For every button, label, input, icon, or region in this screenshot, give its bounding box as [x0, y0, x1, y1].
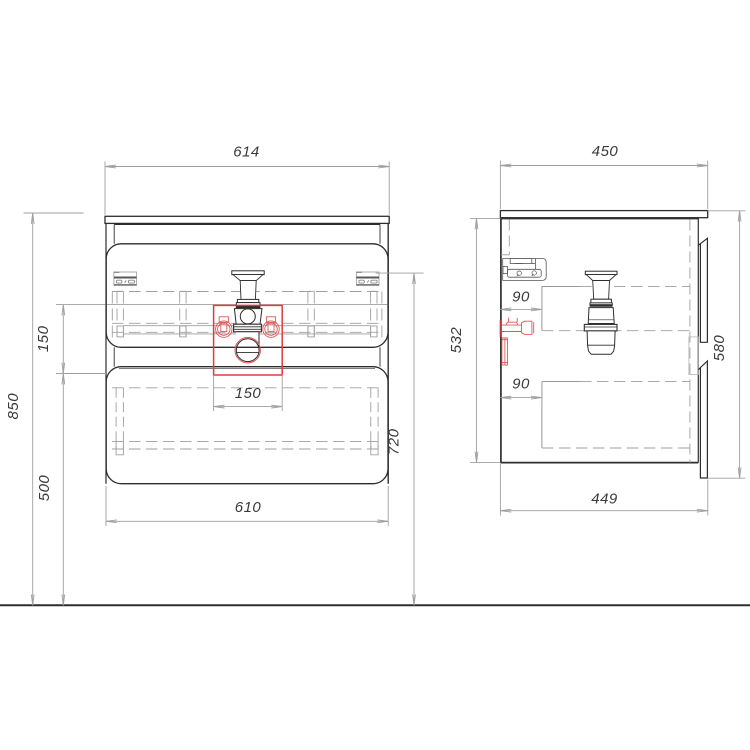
- svg-text:500: 500: [36, 475, 53, 502]
- svg-text:90: 90: [512, 375, 530, 392]
- svg-text:614: 614: [233, 144, 260, 161]
- svg-text:532: 532: [448, 327, 465, 354]
- svg-text:150: 150: [235, 385, 262, 402]
- svg-text:580: 580: [711, 335, 728, 362]
- svg-text:610: 610: [235, 499, 262, 516]
- svg-text:720: 720: [385, 428, 402, 455]
- svg-text:850: 850: [5, 393, 22, 420]
- svg-text:150: 150: [35, 325, 52, 352]
- svg-text:450: 450: [592, 143, 619, 160]
- svg-text:449: 449: [591, 491, 618, 508]
- svg-text:90: 90: [512, 289, 530, 306]
